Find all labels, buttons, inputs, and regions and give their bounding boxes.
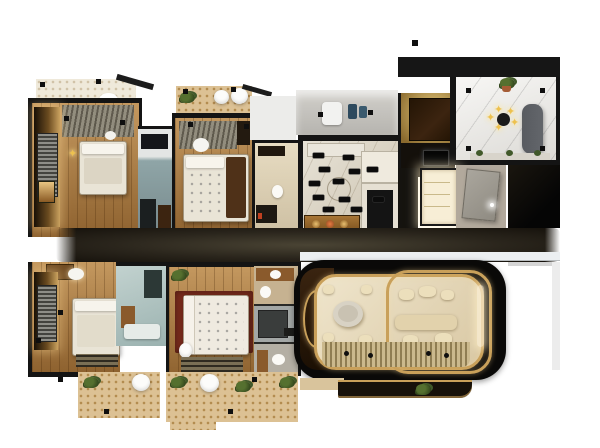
wall-marker — [58, 310, 63, 315]
bed — [183, 154, 249, 222]
wall-marker — [368, 110, 373, 115]
stool — [312, 220, 320, 228]
counter — [361, 183, 399, 233]
dimension-tag — [349, 169, 360, 174]
door-panel — [461, 168, 500, 221]
lamp — [68, 268, 84, 280]
tv-wall — [34, 107, 60, 227]
dimension-tag — [313, 153, 324, 158]
wall-marker — [252, 377, 257, 382]
black-room — [508, 165, 560, 228]
wall-marker — [183, 89, 188, 94]
bed — [183, 295, 249, 355]
rug — [181, 357, 243, 372]
wall-marker — [96, 79, 101, 84]
wc-section — [254, 266, 298, 304]
floral-duvet — [196, 300, 244, 350]
wall-marker — [36, 338, 41, 343]
service-nook — [250, 96, 296, 140]
balcony-extension — [170, 420, 216, 430]
door-room — [456, 165, 506, 228]
chair — [361, 285, 372, 294]
wall-marker — [40, 82, 45, 87]
wall-marker — [188, 122, 193, 127]
utility-room — [296, 90, 398, 135]
dimension-tag — [351, 207, 362, 212]
bathroom-3 — [116, 262, 169, 346]
chandelier-icon: ✦ ✦ ✦ ✦ ✦ — [486, 105, 520, 135]
chair — [323, 333, 334, 342]
canister — [359, 106, 367, 118]
wall-marker — [540, 88, 545, 93]
pouf — [179, 343, 192, 358]
bedroom-1: ✦ — [28, 98, 142, 237]
kitchen — [298, 135, 403, 238]
rug — [76, 354, 118, 367]
pillows — [186, 157, 224, 168]
dimension-tag — [373, 197, 384, 202]
planter-pot — [502, 86, 511, 92]
duvet — [188, 171, 224, 215]
star-decor-icon: ✦ — [68, 149, 77, 160]
wall-marker — [466, 88, 471, 93]
pillows — [75, 301, 117, 311]
dimension-tag — [343, 155, 354, 160]
rear-balcony — [338, 380, 472, 398]
wall-marker — [58, 377, 63, 382]
shower-screen — [140, 199, 156, 229]
chair — [323, 285, 334, 294]
bathroom-1 — [138, 126, 174, 235]
sink — [272, 354, 285, 365]
low-shelf — [470, 153, 550, 160]
pouf — [200, 374, 219, 392]
duvet — [77, 315, 115, 347]
plant-icon — [171, 377, 186, 388]
sink — [270, 270, 281, 279]
wall-core — [398, 168, 418, 228]
indicator-light — [258, 213, 262, 219]
lit-wardrobe — [420, 168, 458, 226]
master-bedroom — [166, 262, 257, 377]
bedroom-2 — [172, 113, 256, 237]
tv-screen — [37, 285, 57, 342]
wall-marker — [228, 409, 233, 414]
pouf — [132, 374, 150, 391]
wall-marker — [466, 146, 471, 151]
wardrobe — [409, 98, 451, 141]
dressing-room — [398, 93, 455, 143]
wall-marker — [412, 40, 418, 46]
duvet — [84, 158, 122, 184]
round-table — [333, 301, 363, 327]
side-table — [193, 138, 209, 152]
living-capsule — [294, 260, 506, 380]
wall-marker — [104, 409, 109, 414]
handle-glint — [490, 203, 494, 207]
wall-marker — [244, 124, 249, 129]
pillows — [82, 144, 124, 154]
balcony-4 — [166, 372, 298, 422]
vanity-appliance — [141, 134, 168, 149]
toilet — [260, 286, 271, 298]
stool — [326, 220, 334, 228]
bathroom-2 — [252, 140, 302, 235]
balcony-3 — [78, 372, 160, 418]
wall-marker — [64, 116, 69, 121]
balcony-1 — [36, 79, 136, 99]
shower-section — [254, 304, 298, 344]
dimension-tag — [367, 167, 378, 172]
wall-marker — [540, 146, 545, 151]
wall-marker — [318, 112, 323, 117]
top-wall-band — [398, 57, 560, 77]
dimension-tag — [319, 167, 330, 172]
blanket — [226, 157, 246, 218]
bed — [79, 141, 127, 195]
nightstand — [105, 131, 116, 140]
plant-icon — [280, 377, 295, 388]
plant-icon — [172, 270, 187, 281]
bedroom-3 — [28, 262, 120, 377]
dimension-tag — [323, 207, 334, 212]
cabinet — [257, 350, 268, 372]
wall-marker — [120, 120, 125, 125]
toilet — [272, 185, 283, 198]
bed — [72, 298, 120, 356]
dimension-tag — [333, 179, 344, 184]
mirror-cabinet — [258, 146, 285, 156]
plant-icon — [416, 384, 431, 395]
tv-screen — [423, 150, 449, 166]
dimension-tag — [313, 195, 324, 200]
stool — [340, 220, 348, 228]
canister — [348, 104, 357, 119]
floor-plan-render: ✦ — [0, 0, 600, 448]
wall-marker — [231, 87, 236, 92]
dimension-tag — [309, 181, 320, 186]
terrace-wall — [552, 262, 560, 370]
pouf — [214, 90, 229, 104]
shower-screen — [144, 270, 162, 298]
plant-icon — [84, 377, 99, 388]
bathtub — [124, 324, 160, 339]
deck-floor — [322, 342, 470, 367]
dimension-tag — [339, 197, 350, 202]
oven — [367, 190, 393, 228]
plant-icon — [236, 381, 251, 392]
wall-light — [477, 285, 484, 347]
water-heater — [322, 102, 342, 125]
artwork — [38, 181, 55, 203]
